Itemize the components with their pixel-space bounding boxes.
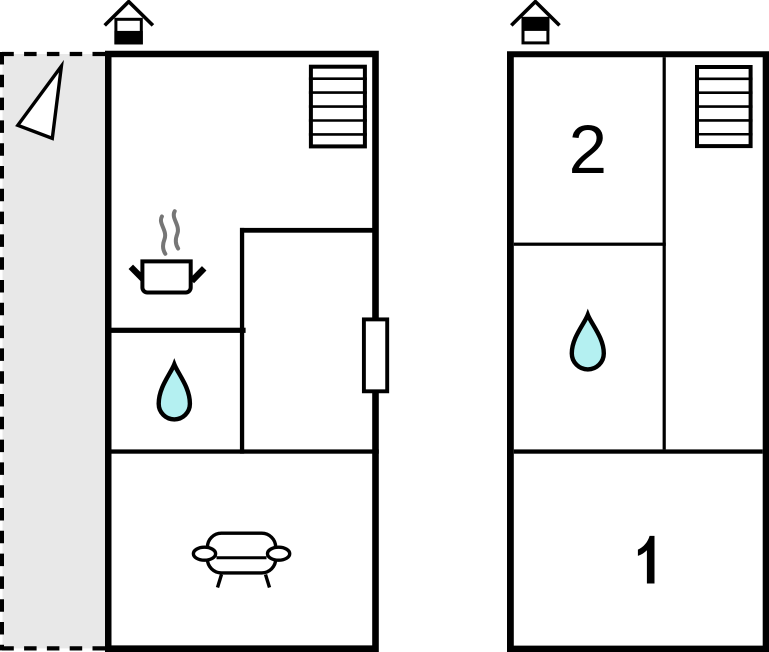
svg-text:2: 2 [569, 111, 607, 188]
